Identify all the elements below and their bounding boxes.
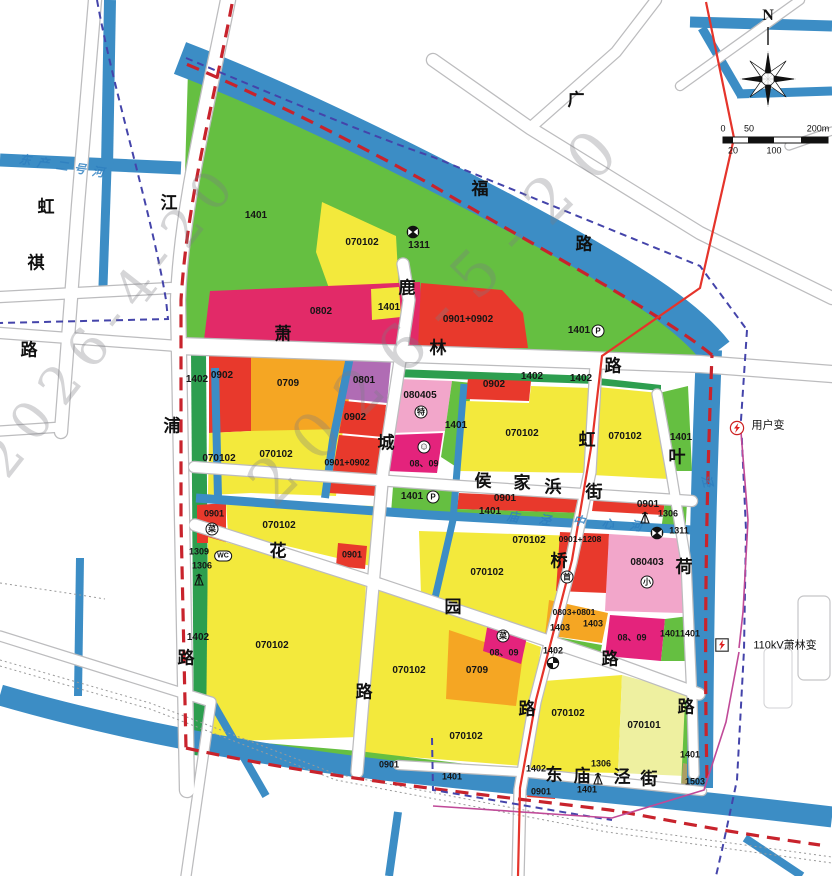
substation-icon <box>715 638 729 652</box>
parcel-code: 0901 <box>494 494 516 504</box>
road-name-char: 庙 <box>574 768 591 785</box>
road-name-char: 江 <box>161 195 178 212</box>
parcel-code: 0801 <box>353 376 375 386</box>
parcel-code: 1401 <box>401 492 423 502</box>
road-name-char: 路 <box>519 701 536 718</box>
parcel-code: 070102 <box>551 709 584 719</box>
planning-map: 2026-4-20 2026-5-20 N050200m20100萧林路广福路江… <box>0 0 832 876</box>
scale-label: 200m <box>807 125 830 134</box>
parcel-code: 070102 <box>345 238 378 248</box>
parcel-code: 1306 <box>192 562 212 571</box>
road-name-char: 虹 <box>38 199 55 216</box>
parcel-code: 0901 <box>204 510 224 519</box>
parcel-code: 1402 <box>570 374 592 384</box>
parcel-code: 1401 <box>442 773 462 782</box>
road-name-char: 浜 <box>545 479 562 496</box>
parcel-code: 1403 <box>550 624 570 633</box>
parcel-code: 070102 <box>202 454 235 464</box>
road-name-char: 虹 <box>579 432 596 449</box>
road-name-char: 街 <box>586 484 603 501</box>
road-name-char: 萧 <box>275 326 292 343</box>
shou-icon: 首 <box>561 571 574 584</box>
river-name-char: 中 <box>572 514 586 528</box>
market-icon: 菜 <box>497 630 510 643</box>
parcel-code: 1311 <box>408 241 430 251</box>
parcel-code: 0902 <box>211 371 233 381</box>
parcel-code: 1306 <box>658 510 678 519</box>
toilet-icon: WC <box>214 551 232 562</box>
parcel-code: 080403 <box>630 558 663 568</box>
gas-station-icon <box>547 657 560 670</box>
parking-icon: P <box>592 325 605 338</box>
parcel-code: 1403 <box>583 620 603 629</box>
parcel-code: 1402 <box>186 375 208 385</box>
map-labels-layer: N050200m20100萧林路广福路江浦路虹祺路鹿城路虹桥路叶荷路侯家浜街花园… <box>0 0 832 876</box>
parcel-code: 0709 <box>277 379 299 389</box>
user-transformer-icon <box>730 421 745 436</box>
parcel-code: 080405 <box>403 391 436 401</box>
road-name-char: 侯 <box>475 473 492 490</box>
parcel-code: 1309 <box>189 548 209 557</box>
parcel-code: 070102 <box>259 450 292 460</box>
parcel-code: 0803+0801 <box>553 608 596 617</box>
parcel-code: 070102 <box>255 641 288 651</box>
poi-label: 用户变 <box>752 421 785 432</box>
road-name-char: 路 <box>356 684 373 701</box>
road-name-char: 广 <box>568 92 585 109</box>
road-name-char: 荷 <box>676 559 693 576</box>
parcel-code: 08、09 <box>617 634 646 643</box>
parcel-code: 1306 <box>591 760 611 769</box>
parcel-code: 0901 <box>637 500 659 510</box>
parcel-code: 0902 <box>344 413 366 423</box>
road-name-char: 花 <box>270 543 287 560</box>
parcel-code: 070102 <box>392 666 425 676</box>
scale-label: 0 <box>720 125 725 134</box>
bridge-icon <box>650 526 664 540</box>
parcel-code: 0901 <box>531 788 551 797</box>
telecom-tower-icon <box>639 511 651 524</box>
road-name-char: 园 <box>445 599 462 616</box>
market-icon: 菜 <box>206 523 219 536</box>
road-name-char: 叶 <box>669 449 686 466</box>
road-name-char: 城 <box>378 435 395 452</box>
road-name-char: 鹿 <box>399 280 416 297</box>
road-name-char: 路 <box>21 342 38 359</box>
road-name-char: 家 <box>514 475 531 492</box>
river-name-char: 泾 <box>538 513 552 527</box>
parcel-code: 1401 <box>568 326 590 336</box>
north-label: N <box>762 8 774 24</box>
road-name-char: 福 <box>472 181 489 198</box>
road-name-char: 路 <box>605 358 622 375</box>
parcel-code: 1402 <box>543 647 563 656</box>
road-name-char: 浦 <box>164 418 181 435</box>
parcel-code: 1503 <box>685 778 705 787</box>
parcel-code: 070102 <box>449 732 482 742</box>
river-name-char: 二 <box>55 159 69 173</box>
parcel-code: 070102 <box>608 432 641 442</box>
river-name-char: 产 <box>36 156 50 170</box>
river-name-char: 号 <box>73 162 87 176</box>
telecom-tower-icon <box>592 772 604 785</box>
parcel-code: 070102 <box>512 536 545 546</box>
parcel-code: 1401 <box>479 507 501 517</box>
road-name-char: 祺 <box>28 255 45 272</box>
parcel-code: 1401 <box>378 303 400 313</box>
road-name-char: 路 <box>602 651 619 668</box>
parcel-code: 1402 <box>187 633 209 643</box>
kindergarten-icon: ☺ <box>418 441 431 454</box>
road-name-char: 街 <box>641 771 658 788</box>
parcel-code: 0802 <box>310 307 332 317</box>
parcel-code: 0901+0902 <box>443 315 493 325</box>
scale-label: 100 <box>766 147 781 156</box>
parcel-code: 08、09 <box>489 649 518 658</box>
parcel-code: 1401 <box>680 751 700 760</box>
parcel-code: 1401 <box>577 786 597 795</box>
river-name-char: 庙 <box>506 510 520 524</box>
road-name-char: 东 <box>546 767 563 784</box>
road-name-char: 泾 <box>614 769 631 786</box>
parcel-code: 0901 <box>379 761 399 770</box>
parcel-code: 1311 <box>669 527 689 536</box>
river-name-char: 东 <box>18 153 32 167</box>
road-name-char: 林 <box>430 340 447 357</box>
parcel-code: 070101 <box>627 721 660 731</box>
scale-label: 20 <box>728 147 738 156</box>
parcel-code: 0901+1208 <box>559 535 602 544</box>
parcel-code: 070102 <box>505 429 538 439</box>
poi-label: 110kV萧林变 <box>753 641 816 652</box>
parcel-code: 1402 <box>526 765 546 774</box>
road-name-char: 路 <box>678 699 695 716</box>
road-name-char: 桥 <box>551 553 568 570</box>
river-name-char: 心 <box>601 517 615 531</box>
parcel-code: 1401 <box>660 630 680 639</box>
parcel-code: 1401 <box>245 211 267 221</box>
primary-school-icon: 小 <box>641 576 654 589</box>
road-name-char: 路 <box>576 236 593 253</box>
road-name-char: 路 <box>178 650 195 667</box>
parcel-code: 1402 <box>521 372 543 382</box>
parcel-code: 0901+0902 <box>324 459 369 468</box>
parking-icon: P <box>427 491 440 504</box>
parcel-code: 0709 <box>466 666 488 676</box>
parcel-code: 1401 <box>680 630 700 639</box>
parcel-code: 1401 <box>445 421 467 431</box>
telecom-tower-icon <box>193 573 205 586</box>
parcel-code: 070102 <box>470 568 503 578</box>
river-name-char: 泾 <box>700 474 715 489</box>
parcel-code: 0902 <box>483 380 505 390</box>
parcel-code: 0901 <box>342 551 362 560</box>
parcel-code: 070102 <box>262 521 295 531</box>
parcel-code: 1401 <box>670 433 692 443</box>
river-name-char: 河 <box>91 165 105 179</box>
scale-label: 50 <box>744 125 754 134</box>
special-use-icon: 特 <box>415 406 428 419</box>
parcel-code: 08、09 <box>409 460 438 469</box>
bridge-icon <box>406 225 420 239</box>
